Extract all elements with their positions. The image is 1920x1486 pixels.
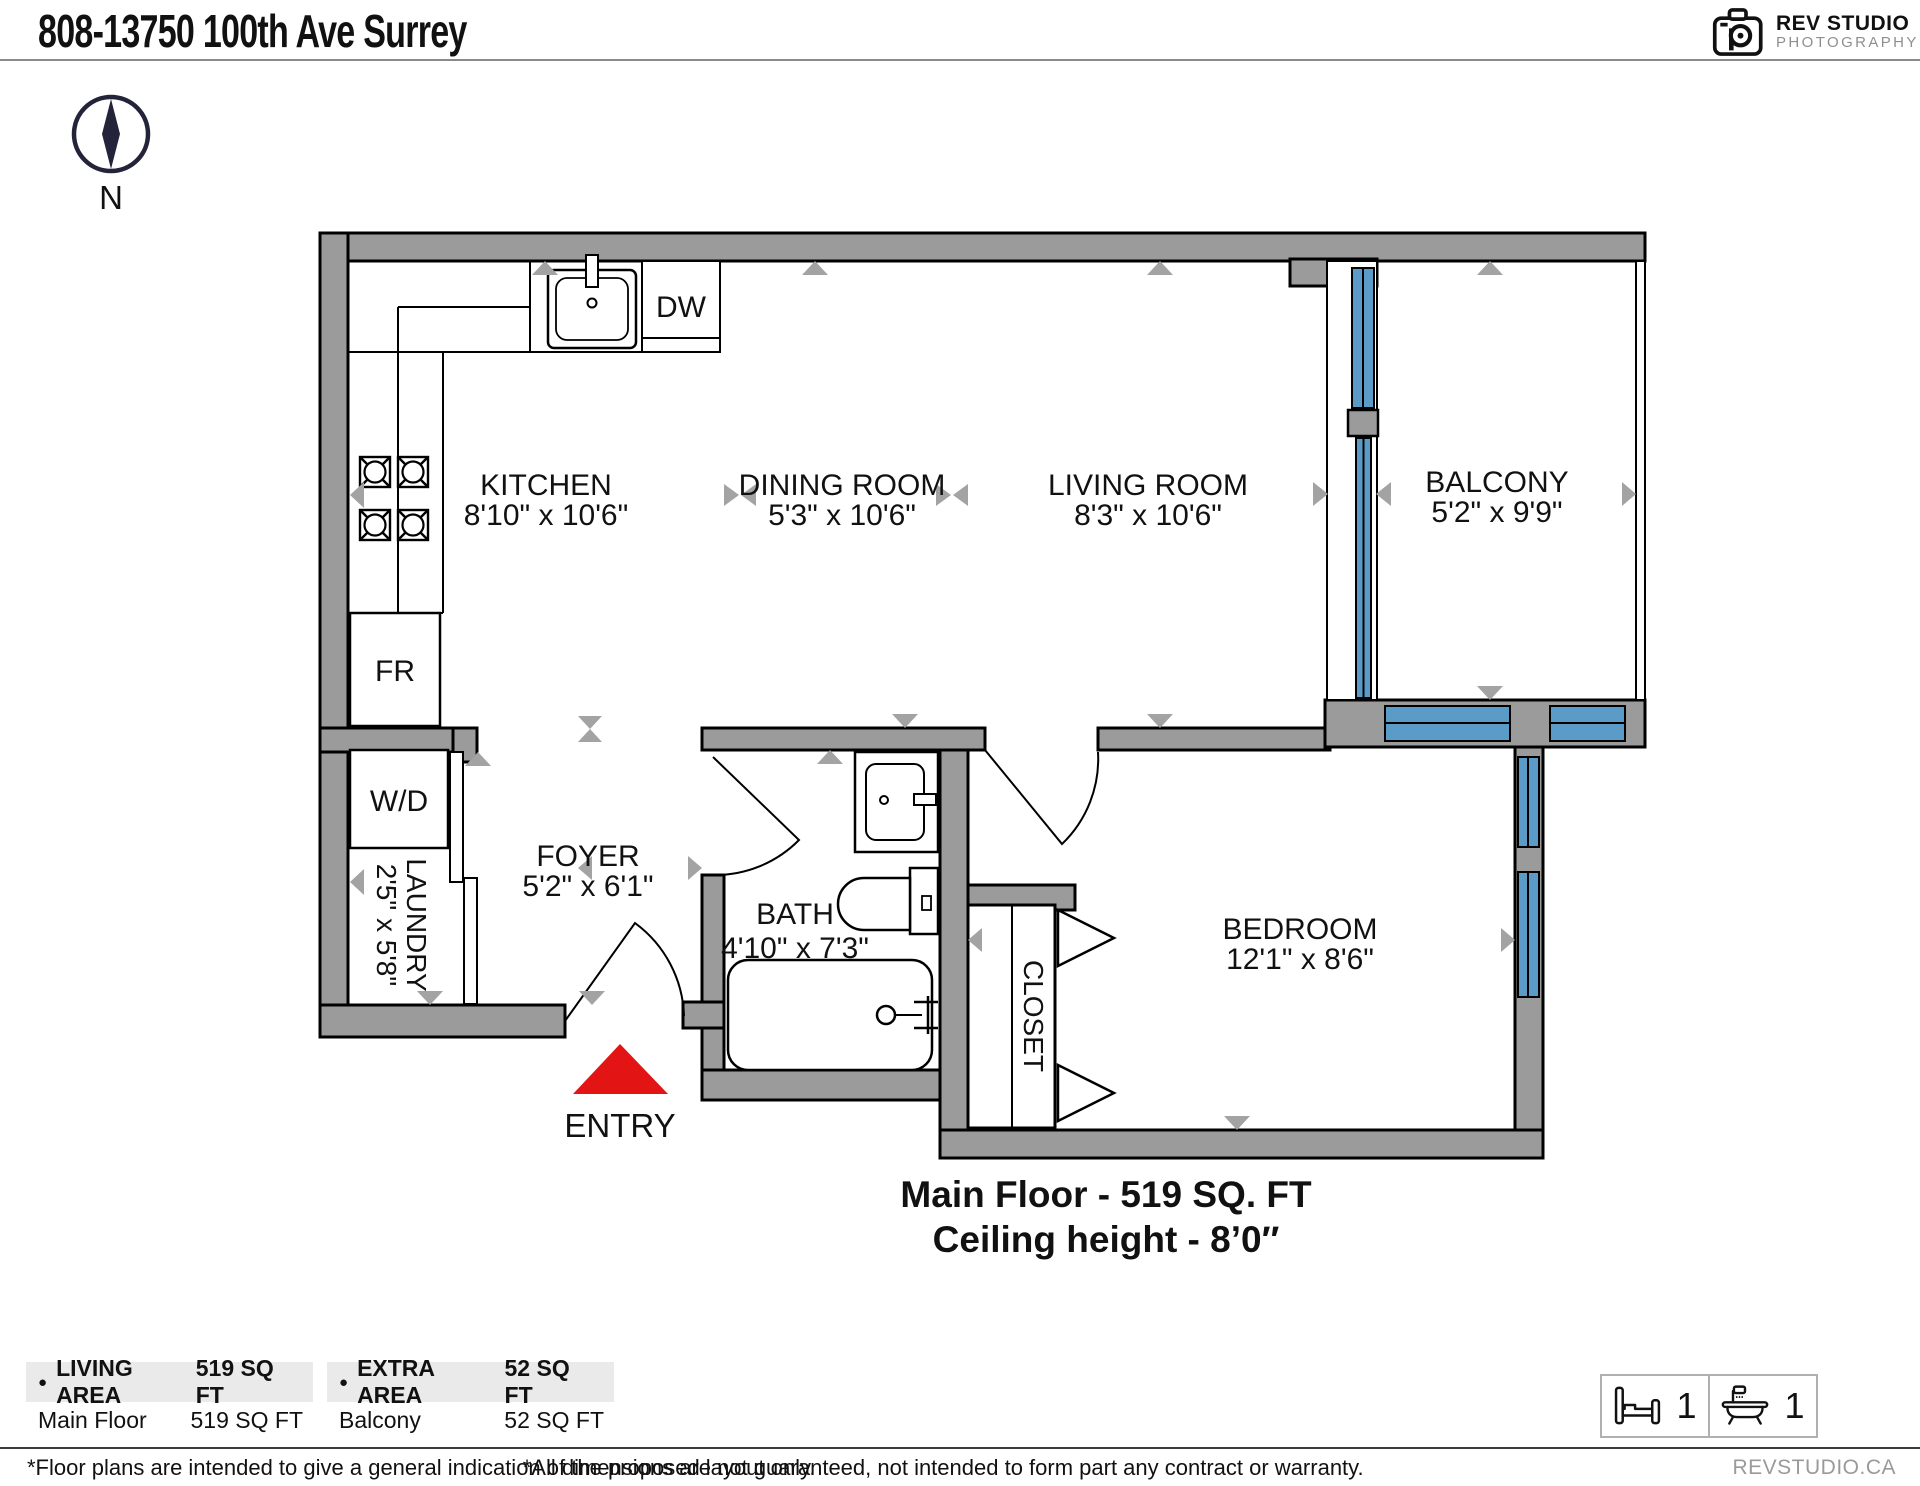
legend-living-total: 519 SQ FT	[196, 1355, 303, 1409]
floorplan-page: 808-13750 100th Ave Surrey REV STUDIO PH…	[0, 0, 1920, 1486]
dishwasher-label: DW	[656, 291, 707, 324]
room-label-dining: DINING ROOM	[739, 469, 946, 502]
washer-dryer-label: W/D	[370, 785, 428, 818]
legend-living-title: LIVING AREA	[56, 1355, 196, 1409]
room-dims-kitchen: 8'10" x 10'6"	[464, 499, 629, 532]
windows	[1348, 268, 1625, 997]
bath-vanity	[855, 752, 938, 852]
legend-extra-total: 52 SQ FT	[505, 1355, 604, 1409]
room-label-kitchen: KITCHEN	[480, 469, 612, 502]
fridge: FR	[350, 613, 440, 726]
bathtub-icon	[1721, 1384, 1769, 1428]
room-label-living: LIVING ROOM	[1048, 469, 1248, 502]
room-label-bedroom: BEDROOM	[1222, 913, 1377, 946]
compass-icon: N	[74, 97, 148, 216]
bathtub	[728, 960, 938, 1070]
bath-door	[713, 757, 799, 875]
floorplan-drawing: N	[0, 0, 1920, 1486]
bath-count-cell: 1	[1708, 1376, 1816, 1436]
floor-summary-ceiling: Ceiling height - 8’0″	[856, 1217, 1356, 1262]
room-label-bath: BATH	[756, 898, 834, 931]
footer-site: REVSTUDIO.CA	[1732, 1456, 1896, 1480]
legend-extra-row-value: 52 SQ FT	[504, 1407, 604, 1434]
footer-note-center: *All dimensions are not guaranteed, not …	[523, 1455, 1364, 1481]
legend-living-row-value: 519 SQ FT	[191, 1407, 303, 1434]
compass-north-label: N	[99, 179, 123, 216]
room-dims-dining: 5'3" x 10'6"	[768, 499, 916, 532]
toilet	[838, 868, 938, 934]
entry-door	[565, 923, 684, 1021]
bullet-icon: ●	[339, 1375, 348, 1390]
stove	[360, 457, 428, 540]
bath-count: 1	[1784, 1385, 1804, 1427]
legend-extra-title: EXTRA AREA	[357, 1355, 504, 1409]
room-label-foyer: FOYER	[536, 840, 639, 873]
room-label-closet: CLOSET	[1018, 960, 1049, 1072]
room-dims-bedroom: 12'1" x 8'6"	[1226, 943, 1374, 976]
footer-divider	[0, 1447, 1920, 1449]
legend-living-area: ● LIVING AREA 519 SQ FT Main Floor 519 S…	[26, 1362, 313, 1439]
room-dims-laundry: 2'5" x 5'8"	[371, 864, 402, 986]
fridge-label: FR	[375, 655, 415, 688]
bedroom-door	[985, 750, 1098, 844]
room-dims-living: 8'3" x 10'6"	[1074, 499, 1222, 532]
room-label-laundry: LAUNDRY	[401, 858, 432, 992]
bed-count: 1	[1676, 1385, 1696, 1427]
dishwasher: DW	[642, 261, 720, 352]
floor-summary-area: Main Floor - 519 SQ. FT	[856, 1172, 1356, 1217]
bullet-icon: ●	[38, 1375, 47, 1390]
legend-living-row-label: Main Floor	[38, 1407, 147, 1434]
room-dims-foyer: 5'2" x 6'1"	[522, 870, 653, 903]
legend-extra-area: ● EXTRA AREA 52 SQ FT Balcony 52 SQ FT	[327, 1362, 614, 1439]
room-dims-balcony: 5'2" x 9'9"	[1431, 496, 1562, 529]
kitchen-sink	[548, 255, 636, 348]
entry-label: ENTRY	[564, 1107, 675, 1144]
floor-summary: Main Floor - 519 SQ. FT Ceiling height -…	[856, 1172, 1356, 1262]
legend-extra-row-label: Balcony	[339, 1407, 421, 1434]
bed-bath-counts: 1 1	[1600, 1374, 1818, 1438]
room-dims-bath: 4'10" x 7'3"	[721, 932, 869, 965]
bed-count-cell: 1	[1602, 1376, 1708, 1436]
room-label-balcony: BALCONY	[1425, 466, 1568, 499]
bed-icon	[1613, 1386, 1661, 1426]
entry-arrow-icon	[573, 1044, 668, 1094]
